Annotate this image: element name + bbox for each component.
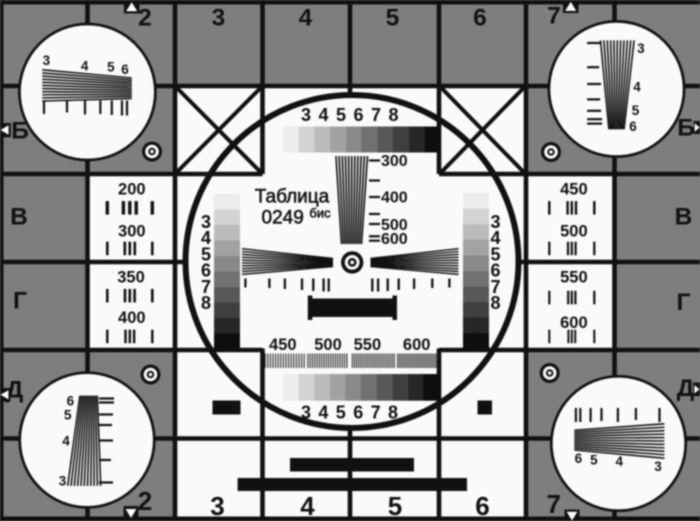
svg-text:450: 450 <box>560 180 588 198</box>
svg-text:550: 550 <box>354 336 382 354</box>
svg-text:200: 200 <box>118 180 146 198</box>
svg-text:3: 3 <box>43 53 51 68</box>
svg-text:6: 6 <box>629 119 637 134</box>
svg-text:4: 4 <box>299 5 313 32</box>
svg-text:Г: Г <box>677 289 691 316</box>
svg-text:4: 4 <box>318 403 328 423</box>
svg-text:5: 5 <box>107 59 115 74</box>
svg-text:500: 500 <box>314 336 342 354</box>
svg-text:6: 6 <box>67 394 75 409</box>
svg-text:Б: Б <box>11 118 29 145</box>
svg-text:4: 4 <box>62 434 70 449</box>
svg-text:5: 5 <box>386 5 400 32</box>
svg-text:5: 5 <box>388 491 402 521</box>
svg-text:6: 6 <box>473 5 487 32</box>
svg-text:3: 3 <box>637 41 645 56</box>
svg-text:6: 6 <box>575 451 583 466</box>
svg-text:600: 600 <box>560 314 588 332</box>
svg-text:7: 7 <box>371 105 381 125</box>
svg-text:3: 3 <box>301 403 311 423</box>
svg-text:Таблица: Таблица <box>255 186 330 207</box>
svg-text:В: В <box>675 204 693 231</box>
svg-text:600: 600 <box>381 231 408 248</box>
svg-text:550: 550 <box>560 268 588 286</box>
svg-text:0249: 0249 <box>262 207 304 228</box>
svg-text:4: 4 <box>81 59 89 74</box>
svg-text:400: 400 <box>381 190 408 207</box>
svg-text:7: 7 <box>371 403 381 423</box>
svg-text:300: 300 <box>381 153 408 170</box>
svg-text:5: 5 <box>336 105 346 125</box>
svg-text:3: 3 <box>212 5 226 32</box>
svg-text:3: 3 <box>59 474 67 489</box>
svg-text:Г: Г <box>13 288 27 315</box>
svg-text:4: 4 <box>616 454 624 469</box>
svg-text:450: 450 <box>269 336 297 354</box>
svg-text:400: 400 <box>118 309 146 327</box>
svg-text:3: 3 <box>210 491 224 521</box>
svg-text:350: 350 <box>117 268 145 286</box>
svg-text:300: 300 <box>118 223 146 241</box>
svg-text:5: 5 <box>64 408 72 423</box>
svg-text:2: 2 <box>138 5 152 32</box>
svg-text:4: 4 <box>300 491 315 521</box>
svg-text:7: 7 <box>547 3 561 30</box>
svg-text:бис: бис <box>309 205 331 220</box>
svg-text:6: 6 <box>475 491 489 521</box>
svg-text:3: 3 <box>301 105 311 125</box>
svg-text:2: 2 <box>138 486 152 516</box>
svg-text:500: 500 <box>560 223 588 241</box>
svg-text:5: 5 <box>632 103 640 118</box>
svg-text:В: В <box>10 204 28 231</box>
svg-text:8: 8 <box>388 403 398 423</box>
svg-text:3: 3 <box>654 459 662 474</box>
svg-text:8: 8 <box>490 293 500 313</box>
svg-text:7: 7 <box>546 489 560 519</box>
svg-text:6: 6 <box>353 403 363 423</box>
svg-text:Д: Д <box>677 375 695 402</box>
svg-text:8: 8 <box>201 293 211 313</box>
svg-text:4: 4 <box>633 80 641 95</box>
svg-text:6: 6 <box>121 62 129 77</box>
svg-text:8: 8 <box>388 105 398 125</box>
svg-text:5: 5 <box>336 403 346 423</box>
svg-text:5: 5 <box>590 452 598 467</box>
svg-text:4: 4 <box>318 105 328 125</box>
svg-text:600: 600 <box>403 336 431 354</box>
svg-text:Б: Б <box>677 115 695 142</box>
svg-text:6: 6 <box>353 105 363 125</box>
